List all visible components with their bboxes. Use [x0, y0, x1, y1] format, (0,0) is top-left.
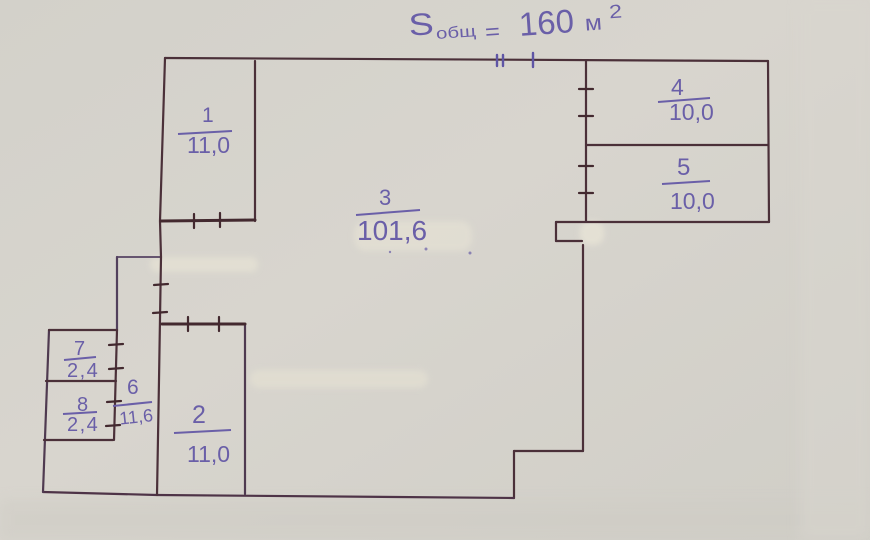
svg-text:2: 2 [608, 1, 622, 23]
svg-text:S: S [407, 6, 434, 43]
svg-text:101,6: 101,6 [357, 215, 427, 246]
svg-text:160: 160 [518, 2, 575, 43]
svg-text:=: = [484, 19, 501, 45]
svg-text:3: 3 [379, 185, 391, 210]
svg-text:11,6: 11,6 [118, 405, 154, 428]
svg-text:11,0: 11,0 [187, 441, 230, 467]
svg-text:2,4: 2,4 [67, 360, 99, 382]
svg-text:2,4: 2,4 [67, 414, 99, 436]
svg-text:10,0: 10,0 [669, 99, 714, 125]
svg-text:м: м [584, 9, 603, 35]
svg-text:6: 6 [127, 376, 139, 399]
svg-text:11,0: 11,0 [187, 132, 230, 158]
svg-text:2: 2 [192, 401, 206, 429]
svg-text:7: 7 [74, 338, 85, 360]
svg-text:1: 1 [202, 104, 214, 127]
svg-text:10,0: 10,0 [670, 188, 715, 214]
svg-text:5: 5 [677, 154, 690, 181]
svg-text:общ: общ [435, 23, 476, 43]
svg-text:4: 4 [671, 74, 684, 100]
